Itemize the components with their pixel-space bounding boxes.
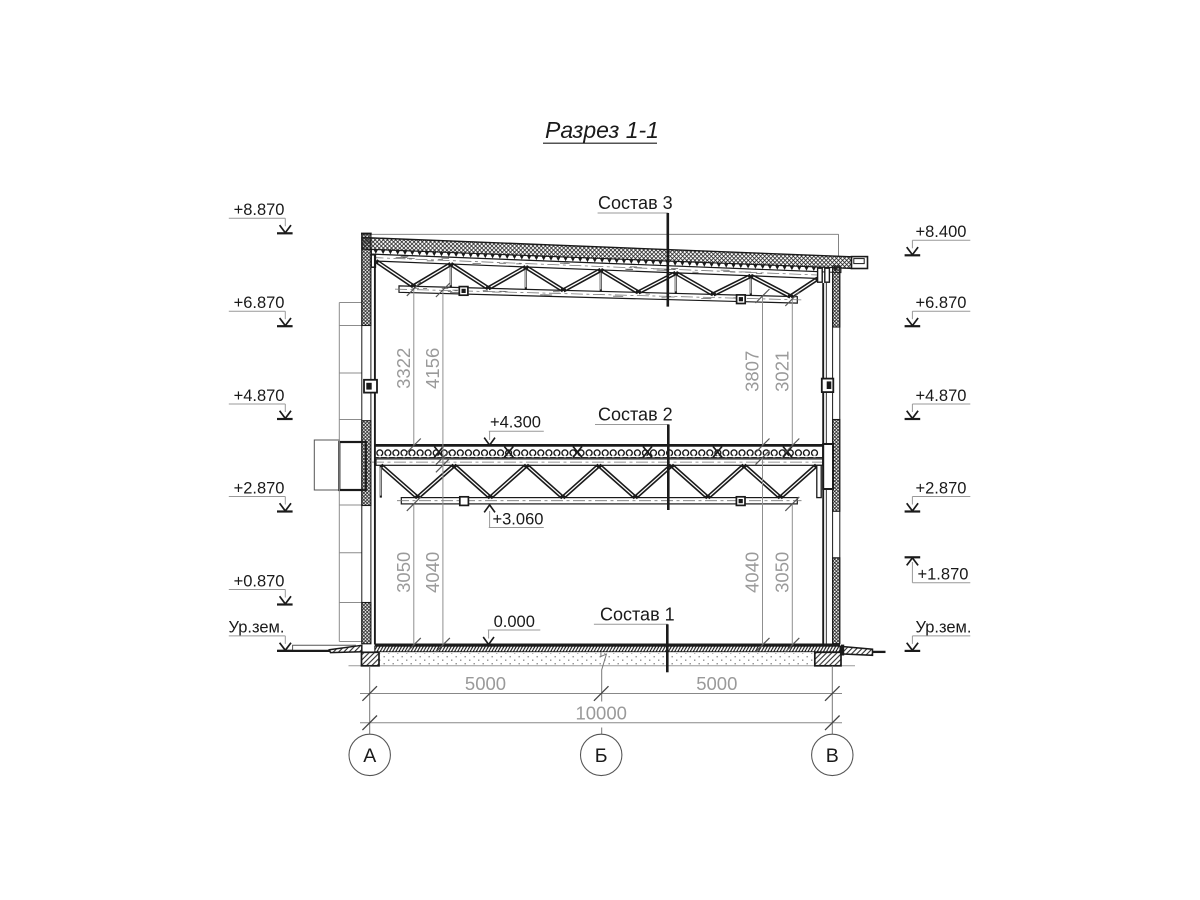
svg-text:3322: 3322 — [393, 348, 414, 389]
svg-text:3050: 3050 — [771, 552, 792, 593]
svg-text:+2.870: +2.870 — [916, 479, 967, 497]
svg-text:5000: 5000 — [465, 673, 506, 694]
svg-text:Состав 1: Состав 1 — [600, 604, 675, 624]
svg-text:Б: Б — [595, 745, 608, 767]
svg-text:+4.870: +4.870 — [234, 387, 285, 405]
svg-text:+6.870: +6.870 — [234, 294, 285, 312]
svg-text:4040: 4040 — [422, 552, 443, 593]
svg-text:+6.870: +6.870 — [916, 294, 967, 312]
svg-text:3050: 3050 — [393, 552, 414, 593]
svg-text:+2.870: +2.870 — [234, 479, 285, 497]
svg-text:10000: 10000 — [575, 702, 626, 723]
svg-text:3807: 3807 — [742, 351, 763, 392]
svg-text:Состав 3: Состав 3 — [598, 193, 673, 213]
svg-text:+0.870: +0.870 — [234, 572, 285, 590]
svg-text:4156: 4156 — [422, 348, 443, 389]
svg-text:Разрез 1-1: Разрез 1-1 — [545, 117, 659, 143]
svg-text:+3.060: +3.060 — [493, 510, 544, 528]
svg-text:5000: 5000 — [696, 673, 737, 694]
svg-text:3021: 3021 — [771, 351, 792, 392]
svg-text:+8.870: +8.870 — [234, 201, 285, 219]
svg-text:В: В — [826, 745, 839, 767]
svg-text:4040: 4040 — [742, 552, 763, 593]
svg-text:+4.300: +4.300 — [490, 413, 541, 431]
svg-text:0.000: 0.000 — [494, 613, 535, 631]
svg-text:Ур.зем.: Ур.зем. — [916, 619, 972, 637]
svg-text:+1.870: +1.870 — [918, 565, 969, 583]
svg-text:А: А — [363, 745, 376, 767]
svg-text:Состав 2: Состав 2 — [598, 405, 673, 425]
svg-text:+8.400: +8.400 — [916, 223, 967, 241]
svg-text:+4.870: +4.870 — [916, 387, 967, 405]
svg-text:Ур.зем.: Ур.зем. — [229, 619, 285, 637]
